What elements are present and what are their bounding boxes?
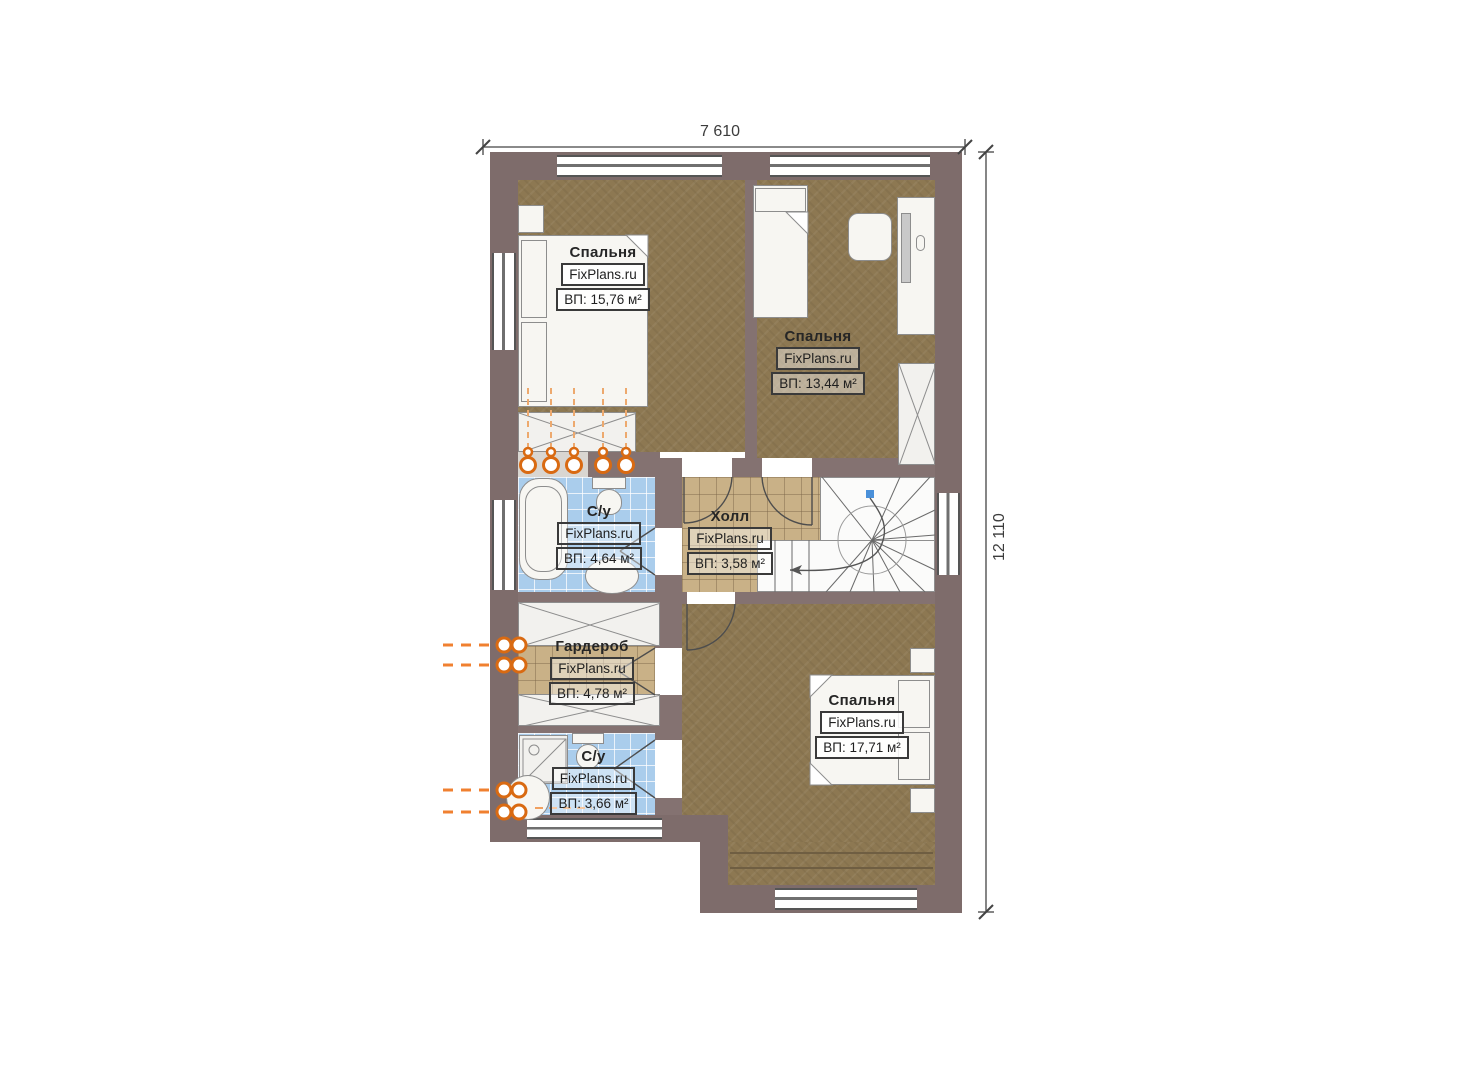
room-name: С/у — [581, 748, 605, 765]
room-brand: FixPlans.ru — [820, 711, 904, 734]
room-area: ВП: 17,71 м² — [815, 736, 909, 759]
dimension-line-top — [476, 139, 972, 155]
room-label-hall: Холл FixPlans.ru ВП: 3,58 м² — [676, 508, 784, 575]
room-label-bathroom-2: С/у FixPlans.ru ВП: 3,66 м² — [546, 748, 641, 815]
room-name: Спальня — [570, 244, 637, 261]
room-area: ВП: 3,58 м² — [687, 552, 773, 575]
room-brand: FixPlans.ru — [561, 263, 645, 286]
dimension-height-label: 12 110 — [991, 497, 1009, 561]
heating-risers — [528, 388, 626, 450]
room-name: Гардероб — [555, 638, 628, 655]
room-area: ВП: 15,76 м² — [556, 288, 650, 311]
room-name: Спальня — [785, 328, 852, 345]
room-name: Спальня — [829, 692, 896, 709]
stairs-start-marker — [866, 490, 874, 498]
room-brand: FixPlans.ru — [557, 522, 641, 545]
room-area: ВП: 13,44 м² — [771, 372, 865, 395]
staircase — [775, 477, 935, 592]
room-brand: FixPlans.ru — [776, 347, 860, 370]
supply-pipes-wardrobe — [443, 638, 526, 672]
room-brand: FixPlans.ru — [688, 527, 772, 550]
door-arc-hall-to-bedroom-3 — [687, 604, 735, 650]
dimension-width-label: 7 610 — [700, 123, 740, 141]
room-name: С/у — [587, 503, 611, 520]
floor-plan-canvas: Спальня FixPlans.ru ВП: 15,76 м² Спальня… — [0, 0, 1474, 1080]
room-label-bathroom-1: С/у FixPlans.ru ВП: 4,64 м² — [553, 503, 645, 570]
room-label-bedroom-1: Спальня FixPlans.ru ВП: 15,76 м² — [549, 244, 657, 311]
room-area: ВП: 4,78 м² — [549, 682, 635, 705]
radiator-valves — [521, 448, 634, 473]
room-brand: FixPlans.ru — [550, 657, 634, 680]
room-name: Холл — [711, 508, 750, 525]
room-label-bedroom-2: Спальня FixPlans.ru ВП: 13,44 м² — [768, 328, 868, 395]
room-brand: FixPlans.ru — [552, 767, 636, 790]
room-label-wardrobe: Гардероб FixPlans.ru ВП: 4,78 м² — [538, 638, 646, 705]
room-label-bedroom-3: Спальня FixPlans.ru ВП: 17,71 м² — [812, 692, 912, 759]
stairs-walk-line — [790, 490, 885, 575]
room-area: ВП: 4,64 м² — [556, 547, 642, 570]
room-area: ВП: 3,66 м² — [550, 792, 636, 815]
